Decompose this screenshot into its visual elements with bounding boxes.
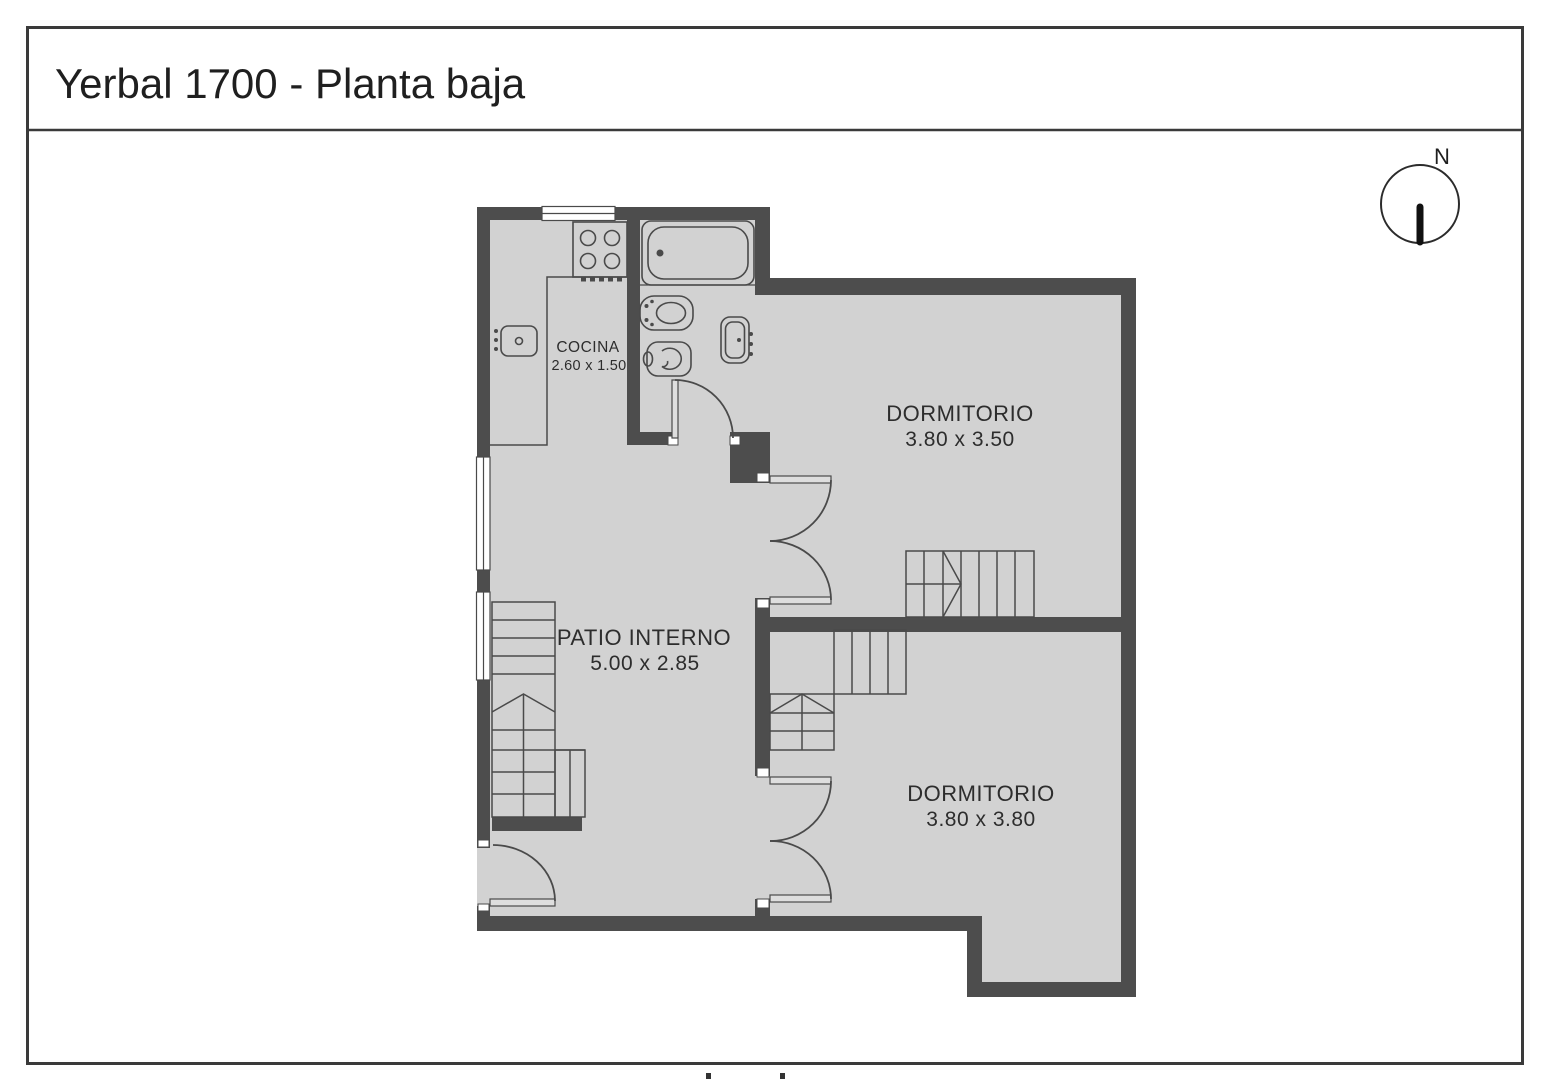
room-label-cocina: COCINA xyxy=(556,339,619,356)
room-dims-patio: 5.00 x 2.85 xyxy=(590,652,699,675)
room-dims-dormitorio-1: 3.80 x 3.50 xyxy=(905,428,1014,451)
scale-bar-marks xyxy=(706,1073,785,1079)
compass-north-label: N xyxy=(1434,144,1450,169)
patio-window-lower xyxy=(477,592,491,680)
room-dims-cocina: 2.60 x 1.50 xyxy=(551,358,626,374)
room-dims-dormitorio-2: 3.80 x 3.80 xyxy=(926,808,1035,831)
room-label-dormitorio-1: DORMITORIO xyxy=(886,401,1034,426)
page-title: Yerbal 1700 - Planta baja xyxy=(55,60,526,107)
kitchen-window xyxy=(542,207,615,221)
room-label-patio: PATIO INTERNO xyxy=(557,625,731,650)
room-label-dormitorio-2: DORMITORIO xyxy=(907,781,1055,806)
patio-window-upper xyxy=(477,457,491,570)
floorplan-page: Yerbal 1700 - Planta baja N xyxy=(0,0,1550,1079)
